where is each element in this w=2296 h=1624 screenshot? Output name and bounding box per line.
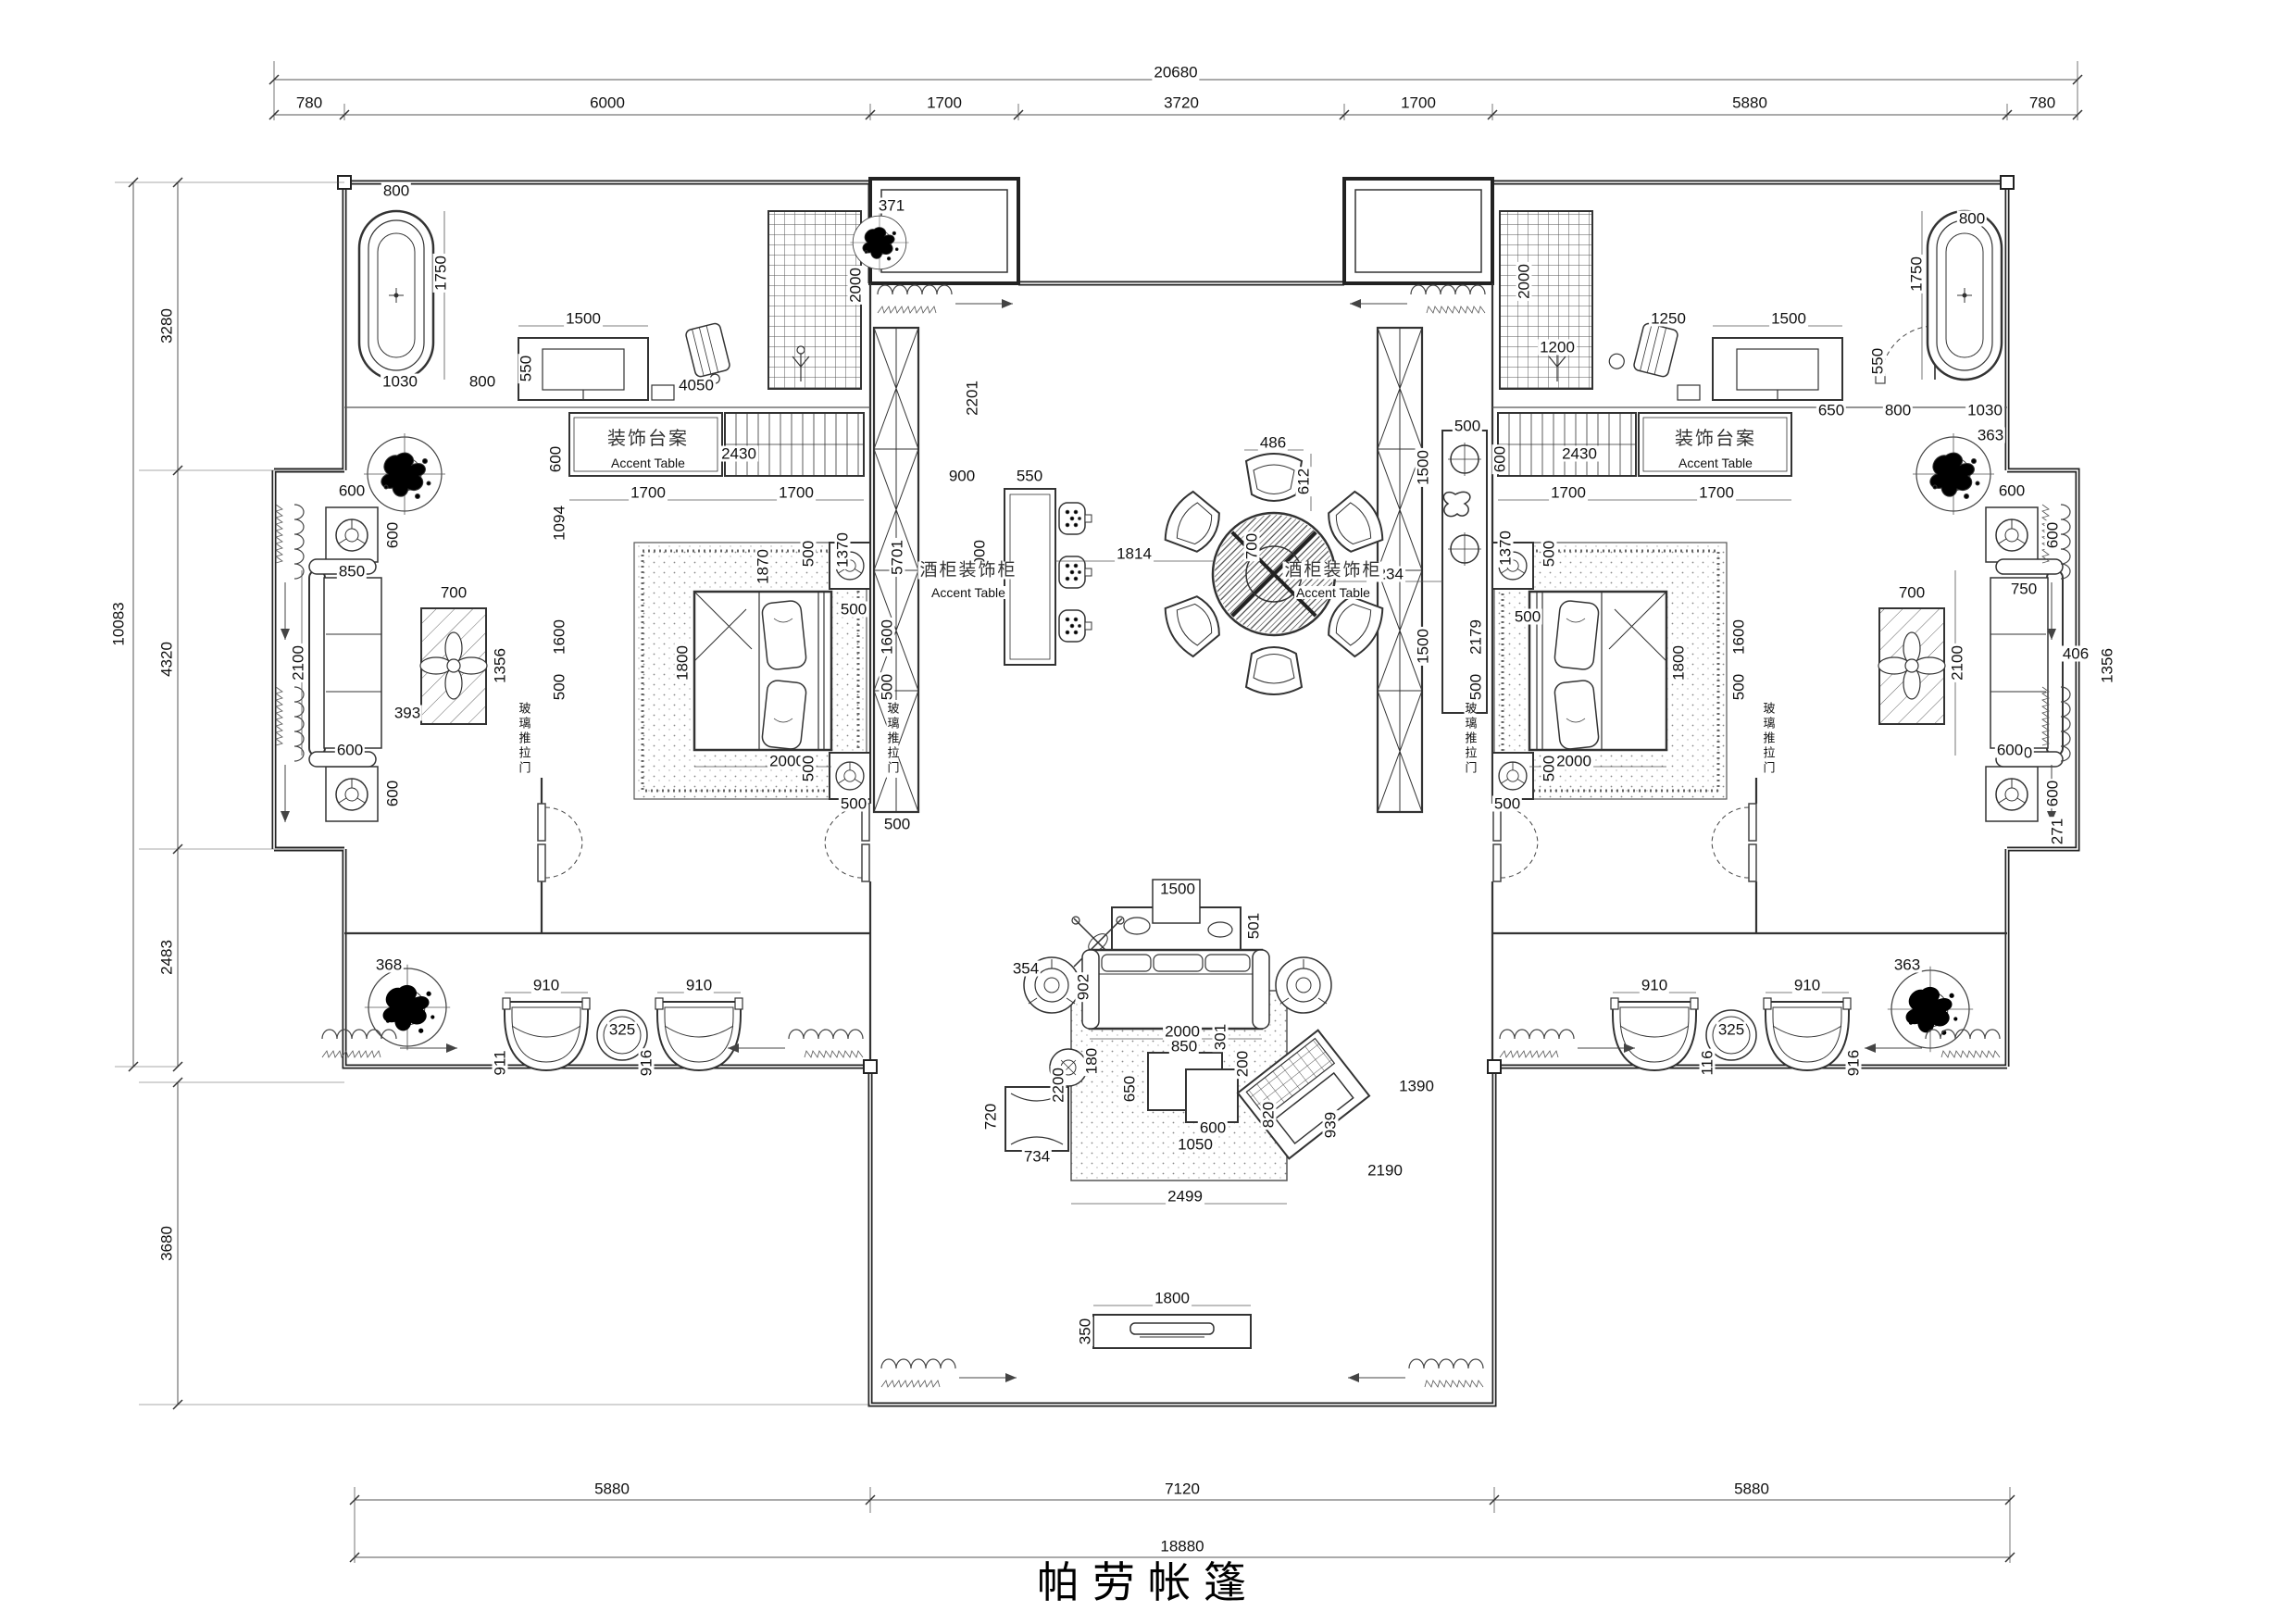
side-table-icon — [326, 767, 378, 821]
nightstand-icon — [1492, 753, 1533, 799]
left-bathroom — [359, 211, 864, 515]
side-table-icon — [1050, 1049, 1087, 1086]
floor-lamp-icon — [1276, 957, 1331, 1013]
left-terrace — [365, 965, 742, 1070]
sliding-door-icon — [825, 804, 869, 881]
sliding-door-icon — [538, 804, 582, 881]
coffee-table-icon — [1878, 608, 1945, 724]
plan-title: 帕劳帐篷 — [1037, 1549, 1259, 1610]
nightstand-icon — [830, 753, 870, 799]
sliding-door-icon — [1712, 804, 1756, 881]
bath-stool-icon — [652, 385, 674, 400]
wine-cabinet-icon — [874, 328, 918, 812]
console-table-icon — [1004, 489, 1055, 665]
luggage-rack-icon — [1608, 317, 1679, 381]
coffee-table-icon — [1186, 1069, 1238, 1122]
luggage-rack-icon — [685, 322, 733, 387]
bed-icon — [694, 592, 831, 750]
dining-table-icon — [1213, 513, 1335, 635]
nightstand-icon — [1492, 543, 1533, 589]
accent-table-console — [569, 413, 864, 476]
shower-icon — [768, 211, 861, 389]
vanity-icon — [518, 338, 648, 400]
coffee-table-icon — [420, 608, 487, 724]
round-table-icon — [1706, 1010, 1756, 1060]
side-table-icon — [326, 507, 378, 562]
right-bathroom — [1498, 211, 2002, 515]
shower-icon — [1500, 211, 1592, 389]
side-table-icon — [1986, 507, 2038, 562]
sofa-icon — [1082, 950, 1269, 1029]
right-bedroom — [1492, 507, 2063, 821]
side-table-icon — [1986, 767, 2038, 821]
right-terrace — [1611, 967, 1973, 1070]
wine-cabinet-icon — [1378, 328, 1422, 812]
floor-plan-page: 2068078060001700372017005880780100833280… — [0, 0, 2296, 1624]
round-table-icon — [597, 1010, 647, 1060]
living-area — [1005, 880, 1369, 1181]
nightstand-icon — [830, 543, 870, 589]
center-zone — [850, 213, 1487, 812]
left-bedroom — [309, 507, 870, 821]
bath-stool-icon — [1678, 385, 1700, 400]
console-table-icon — [1112, 880, 1241, 952]
floor-plan-drawing — [0, 0, 2296, 1624]
bed-icon — [1529, 592, 1666, 750]
floor-lamp-icon — [1024, 957, 1079, 1013]
bottom-room — [1093, 1315, 1251, 1348]
sofa-icon — [309, 559, 381, 767]
swing-door-icon — [1876, 326, 1935, 383]
bar-counter-icon — [1442, 431, 1487, 713]
bathtub-icon — [1928, 211, 2002, 380]
sliding-door-icon — [1493, 804, 1538, 881]
vanity-icon — [1713, 338, 1842, 400]
bench-icon — [1005, 1087, 1068, 1151]
tv-console-icon — [1093, 1315, 1251, 1348]
bathtub-icon — [359, 211, 433, 380]
accent-table-console — [1498, 413, 1791, 476]
closet-right — [1344, 179, 1492, 283]
